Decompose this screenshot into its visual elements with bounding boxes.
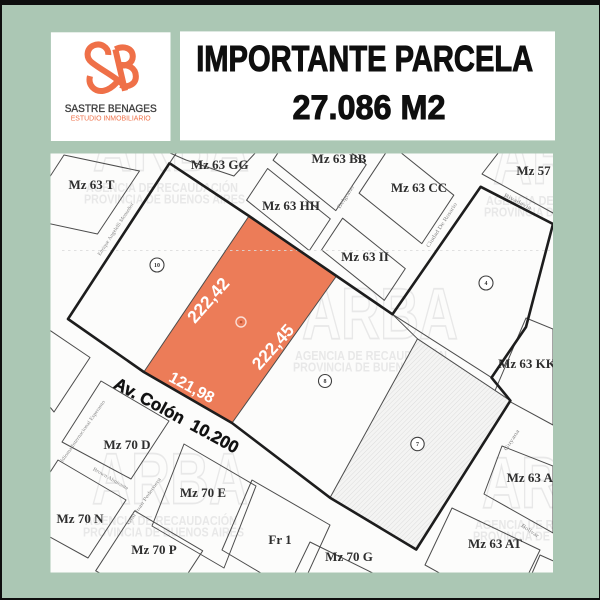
svg-text:PROVINCIA DE BUENOS AIRES: PROVINCIA DE BUENOS AIRES <box>84 193 245 207</box>
svg-text:Mz 63 II: Mz 63 II <box>341 249 389 264</box>
svg-text:Fr 1: Fr 1 <box>268 532 291 547</box>
svg-text:Mz 63 AJ: Mz 63 AJ <box>507 470 560 485</box>
svg-text:Mz 63 GG: Mz 63 GG <box>191 157 249 172</box>
svg-text:Mz 63 T: Mz 63 T <box>69 177 115 192</box>
svg-text:4: 4 <box>485 281 488 287</box>
svg-text:Mz 70 P: Mz 70 P <box>131 542 177 557</box>
svg-text:27.086 M2: 27.086 M2 <box>293 89 446 127</box>
svg-text:Mz 70 G: Mz 70 G <box>325 549 373 564</box>
svg-text:Mz 70 D: Mz 70 D <box>104 437 151 452</box>
svg-text:Mz 70 N: Mz 70 N <box>57 511 105 526</box>
svg-text:7: 7 <box>416 442 419 448</box>
svg-text:Mz 63 AT: Mz 63 AT <box>468 536 522 551</box>
svg-text:Mz 63 HH: Mz 63 HH <box>262 198 320 213</box>
svg-text:Mz 70 E: Mz 70 E <box>180 485 226 500</box>
svg-text:ESTUDIO INMOBILIARIO: ESTUDIO INMOBILIARIO <box>71 114 151 123</box>
svg-text:8: 8 <box>324 379 327 385</box>
svg-text:Mz 63 KK: Mz 63 KK <box>498 356 557 371</box>
svg-text:Mz 63 CC: Mz 63 CC <box>391 180 447 195</box>
svg-text:10: 10 <box>154 263 160 269</box>
svg-text:Mz 57: Mz 57 <box>516 163 551 178</box>
svg-text:IMPORTANTE PARCELA: IMPORTANTE PARCELA <box>196 38 533 79</box>
